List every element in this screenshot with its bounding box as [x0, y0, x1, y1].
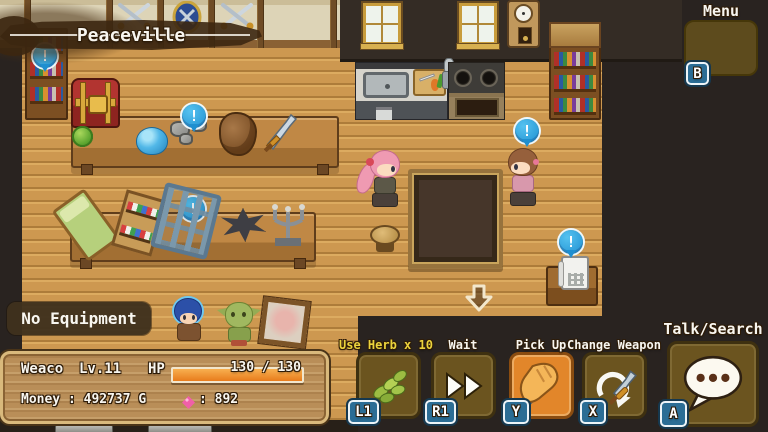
location-banner: Peaceville — [0, 20, 262, 50]
window — [363, 3, 401, 45]
goblin-companion[interactable] — [217, 302, 261, 348]
treasure-chest[interactable] — [71, 78, 120, 128]
gem-count: : 892 — [199, 392, 238, 407]
interaction-marker[interactable]: ! — [559, 230, 583, 254]
game-screen: ! ! ! — [0, 0, 768, 432]
dining-table — [408, 169, 503, 268]
action-label-change-weapon: Change Weapon — [559, 338, 669, 352]
grandfather-clock — [507, 0, 540, 48]
pick-up-badge-y[interactable]: Y — [503, 400, 529, 424]
menu-label: Menu — [684, 2, 758, 20]
status-panel: Weaco Lv.11 HP 130 / 130 Money : 492737 … — [0, 351, 329, 424]
brown-haired-villager[interactable] — [502, 146, 544, 210]
pink-gem-icon — [182, 396, 195, 409]
interaction-marker[interactable]: ! — [515, 119, 539, 143]
slime-gel — [136, 127, 168, 155]
stool — [370, 225, 400, 253]
down-arrow-icon[interactable] — [465, 283, 493, 313]
stone-pillar-cap — [55, 423, 113, 432]
hp-value: 130 / 130 — [203, 360, 301, 375]
portrait-frame — [258, 296, 310, 348]
equipment-status-label: No Equipment — [7, 302, 151, 335]
candelabra-item — [262, 198, 314, 250]
pink-haired-villager[interactable] — [362, 150, 404, 212]
stone-pillar-cap — [148, 423, 212, 432]
use-herb-badge-l1[interactable]: L1 — [348, 400, 379, 424]
character-name: Weaco — [21, 361, 63, 377]
cabbages — [72, 126, 120, 173]
stove — [448, 62, 505, 120]
interaction-marker[interactable]: ! — [182, 104, 206, 128]
money-value: Money : 492737 G — [21, 392, 146, 407]
bookshelf-right — [549, 22, 601, 120]
action-label-talk-search: Talk/Search — [653, 320, 768, 338]
hide-chunk — [219, 112, 257, 156]
sink — [363, 72, 409, 98]
location-name: Peaceville — [77, 25, 185, 46]
talk-search-badge-a[interactable]: A — [660, 401, 687, 427]
change-weapon-badge-x[interactable]: X — [580, 400, 606, 424]
wait-badge-r1[interactable]: R1 — [425, 400, 456, 424]
sword-icon — [264, 110, 302, 152]
character-level: Lv.11 — [79, 361, 121, 377]
fast-forward-icon — [443, 371, 485, 401]
speech-bubble-icon — [680, 354, 746, 414]
menu-badge-b[interactable]: B — [686, 62, 709, 85]
window — [459, 3, 497, 45]
hp-label: HP — [148, 361, 165, 377]
blue-haired-hero[interactable] — [166, 296, 210, 346]
